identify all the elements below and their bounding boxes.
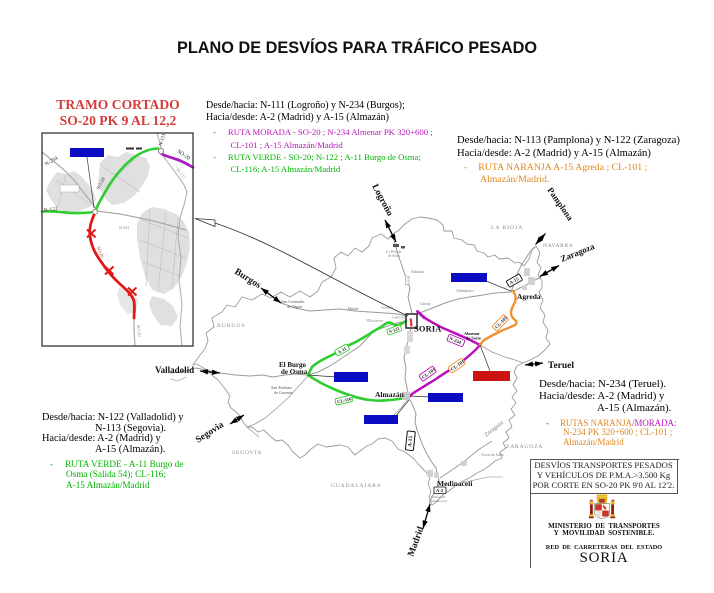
- svg-text:Segovia: Segovia: [194, 420, 226, 445]
- svg-text:Abejar: Abejar: [347, 306, 359, 311]
- svg-text:GUADALAJARA: GUADALAJARA: [331, 483, 381, 489]
- svg-text:ZARAGOZA: ZARAGOZA: [506, 444, 543, 450]
- svg-text:Burgos: Burgos: [232, 267, 262, 291]
- svg-text:Golmayo: Golmayo: [392, 316, 406, 320]
- svg-text:LA RIOJA: LA RIOJA: [491, 225, 523, 231]
- svg-text:Aldealpozo: Aldealpozo: [456, 289, 474, 293]
- svg-text:BURGOS: BURGOS: [217, 323, 246, 329]
- svg-text:Pamplona: Pamplona: [545, 185, 575, 222]
- svg-text:SEGOVIA: SEGOVIA: [232, 450, 262, 456]
- svg-text:SORIA: SORIA: [414, 325, 442, 334]
- svg-text:Ocenilla: Ocenilla: [381, 306, 394, 310]
- svg-text:A-2: A-2: [436, 488, 444, 493]
- svg-text:Valladolid: Valladolid: [155, 365, 194, 375]
- svg-text:Zaragoza: Zaragoza: [484, 420, 506, 439]
- svg-text:Madrid: Madrid: [406, 525, 426, 558]
- svg-text:A-15: A-15: [407, 435, 414, 447]
- svg-text:Arcos de Jalón: Arcos de Jalón: [481, 453, 504, 457]
- svg-text:Agreda: Agreda: [517, 292, 541, 301]
- svg-text:SO-20: SO-20: [136, 325, 142, 338]
- svg-text:NAVARRA: NAVARRA: [543, 243, 573, 249]
- svg-text:N-111: N-111: [159, 133, 167, 147]
- svg-text:Garray: Garray: [420, 302, 431, 306]
- svg-text:Almarza: Almarza: [411, 270, 424, 274]
- svg-text:Almazán: Almazán: [375, 390, 405, 399]
- svg-text:de Soria: de Soria: [388, 254, 400, 258]
- svg-text:de Yagüe: de Yagüe: [287, 304, 302, 309]
- svg-text:de Soria: de Soria: [466, 336, 482, 341]
- svg-text:Medinaceli: Medinaceli: [431, 499, 447, 503]
- svg-text:N-234: N-234: [44, 155, 59, 167]
- svg-text:Villaciervos: Villaciervos: [366, 319, 384, 323]
- svg-text:Logroño: Logroño: [369, 183, 394, 219]
- svg-text:Teruel: Teruel: [548, 361, 574, 371]
- svg-text:N-234: N-234: [119, 225, 129, 230]
- svg-text:de Gormaz: de Gormaz: [274, 390, 293, 395]
- svg-text:de Osma: de Osma: [281, 368, 308, 376]
